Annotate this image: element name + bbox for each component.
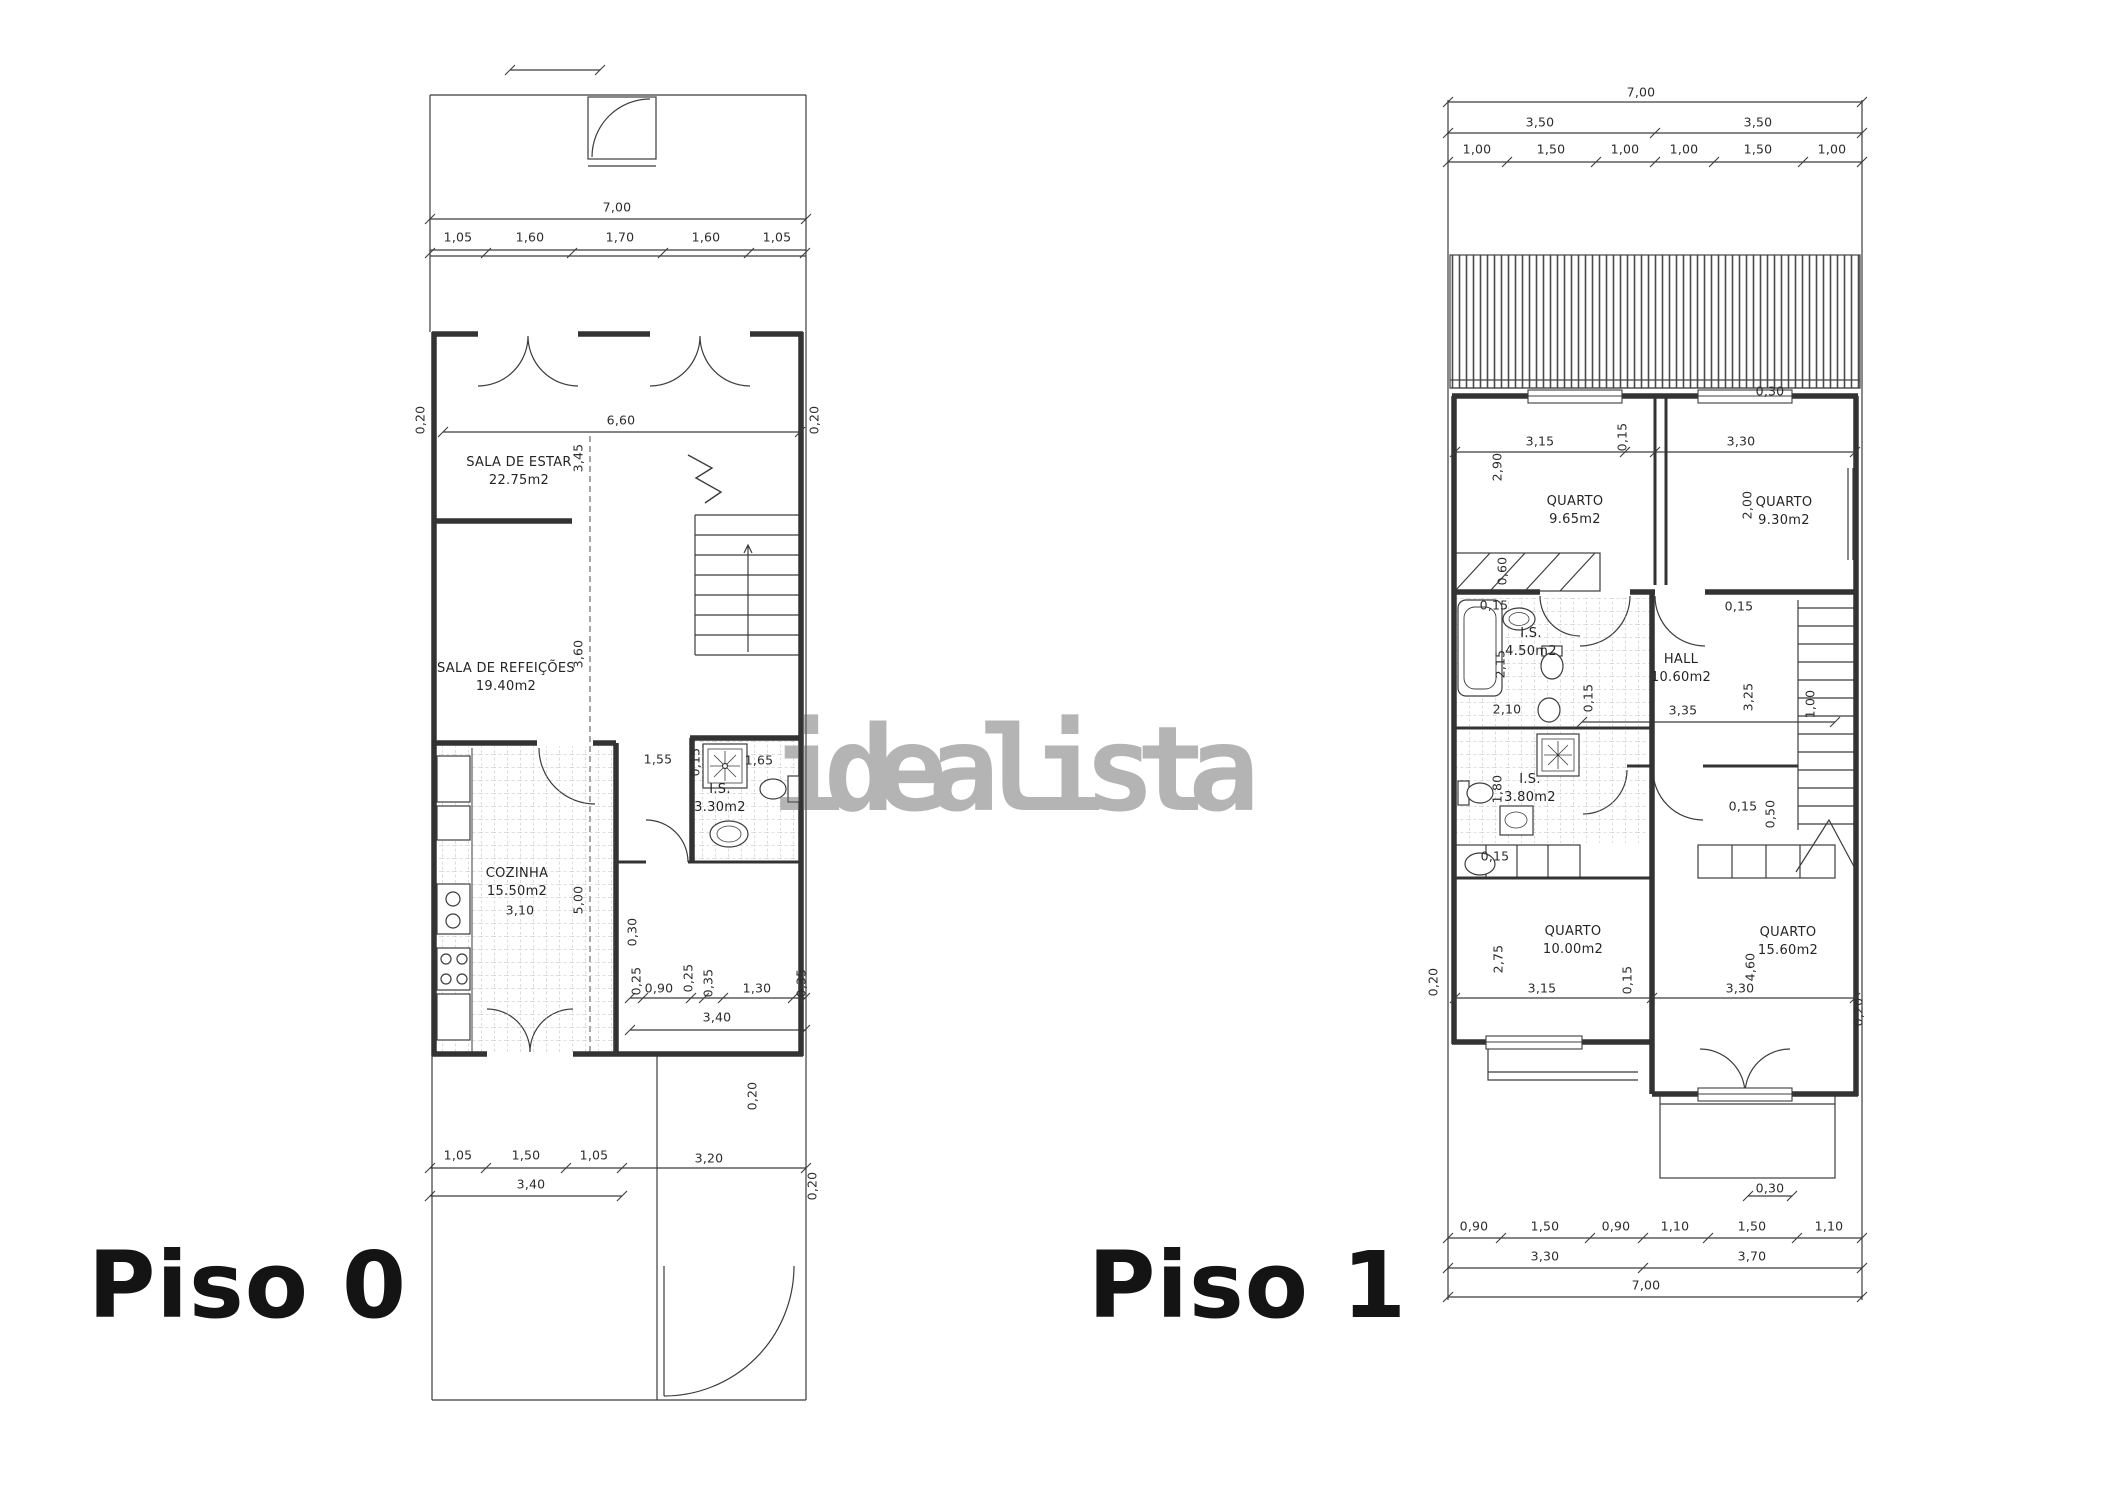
- dim-f0-top-seg: 1,70: [606, 231, 635, 244]
- burner: [441, 974, 451, 984]
- dim-f1-wardrobe-sw-015: 0,15: [1481, 850, 1510, 863]
- dim-f0-mid-seg: 0,90: [645, 982, 674, 995]
- room-area: 3.30m2: [694, 799, 746, 817]
- bathtub-inner: [1464, 607, 1496, 689]
- dim-f1-sw-depth: 2,75: [1492, 945, 1505, 974]
- dim-f0-top-seg: 1,05: [763, 231, 792, 244]
- dim-f1-sw-wall: 0,15: [1621, 966, 1634, 995]
- burner: [441, 954, 451, 964]
- dim-f0-mid-seg: 0,35: [702, 969, 715, 998]
- dim-f0-wall-bottom: 0,20: [806, 1172, 819, 1201]
- stair-break-symbol: [688, 455, 721, 503]
- dim-f0-interior-width: 6,60: [607, 414, 636, 427]
- sink-bowl: [446, 914, 460, 928]
- room-area: 15.60m2: [1758, 942, 1818, 960]
- room-area: 19.40m2: [437, 678, 575, 696]
- dim-f0-top-seg: 1,60: [692, 231, 721, 244]
- dim-f0-wall-030: 0,30: [626, 918, 639, 947]
- dim-f1-window-se-015: 0,15: [1729, 800, 1758, 813]
- window-ne-east: [1848, 468, 1853, 560]
- room-label-sala-estar: SALA DE ESTAR 22.75m2: [466, 454, 572, 490]
- dim-f1-width-total-bottom: 7,00: [1632, 1279, 1661, 1292]
- dim-f1-bottom-total: 3,30: [1531, 1250, 1560, 1263]
- dim-f1-top-seg: 1,50: [1537, 143, 1566, 156]
- dim-f1-half: 3,50: [1526, 116, 1555, 129]
- dim-f1-bottom-seg: 1,10: [1815, 1220, 1844, 1233]
- dim-f1-bottom-seg: 0,90: [1460, 1220, 1489, 1233]
- room-name: HALL: [1651, 651, 1711, 669]
- dim-f1-top-seg: 1,00: [1818, 143, 1847, 156]
- room-name: COZINHA: [486, 865, 549, 883]
- dim-f1-bottom-seg: 1,10: [1661, 1220, 1690, 1233]
- dim-f0-bottom-seg: 1,50: [512, 1149, 541, 1162]
- balcony-door-arc: [1700, 1049, 1790, 1094]
- dim-f0-width-total: 7,00: [603, 201, 632, 214]
- room-label-quarto-sw: QUARTO 10.00m2: [1543, 923, 1603, 959]
- dim-f1-hall-door-015: 0,15: [1725, 600, 1754, 613]
- dim-f1-hall-depth: 3,25: [1742, 683, 1755, 712]
- dim-f0-mid-seg: 0,35: [795, 969, 808, 998]
- room-name: I.S.: [1505, 625, 1557, 643]
- room-name: QUARTO: [1547, 493, 1604, 511]
- wardrobe-nw-hatch: [1455, 553, 1595, 591]
- dim-f0-bottom-seg: 1,05: [580, 1149, 609, 1162]
- dim-f1-is-grande-015: 0,15: [1480, 599, 1509, 612]
- room-label-is-f0: I.S. 3.30m2: [694, 781, 746, 817]
- sink-bowl: [446, 892, 460, 906]
- dim-f1-wall-right: 0,20: [1852, 998, 1865, 1027]
- room-area: 3.80m2: [1504, 789, 1556, 807]
- floor0-title: Piso 0: [88, 1232, 407, 1339]
- dim-f1-se-depth: 4,60: [1744, 953, 1757, 982]
- room-name: QUARTO: [1543, 923, 1603, 941]
- dim-f0-bottom-right: 3,20: [695, 1152, 724, 1165]
- floor0-drawing: [385, 60, 825, 1420]
- dim-f0-top-seg: 1,05: [444, 231, 473, 244]
- dim-f0-pass-015: 0,15: [689, 748, 702, 777]
- counter-unit: [437, 756, 470, 802]
- roof-hatch: [1450, 255, 1860, 388]
- dim-f0-wall-mid: 0,20: [746, 1082, 759, 1111]
- room-label-quarto-ne: QUARTO 9.30m2: [1756, 494, 1813, 530]
- dim-f0-wall-right: 0,20: [808, 406, 821, 435]
- gate-door-arc: [664, 1266, 794, 1396]
- dim-f1-stairs-width: 1,00: [1804, 690, 1817, 719]
- burner: [457, 974, 467, 984]
- watermark-logo: idealista: [772, 700, 1240, 838]
- room-label-is-grande: I.S. 4.50m2: [1505, 625, 1557, 661]
- cabinet-unit: [437, 994, 470, 1040]
- dim-f1-hall-wall-015: 0,15: [1582, 684, 1595, 713]
- room-name: QUARTO: [1756, 494, 1813, 512]
- porch-door-arc: [592, 99, 650, 157]
- dim-f0-mid-total: 3,40: [703, 1011, 732, 1024]
- dim-f1-se-width: 3,30: [1726, 982, 1755, 995]
- dim-f1-is-pequena-depth: 1,80: [1491, 775, 1504, 804]
- partition-quartos: [1655, 396, 1666, 585]
- sink-basin: [1509, 613, 1529, 626]
- room-name: I.S.: [694, 781, 746, 799]
- dim-f1-sw-width: 3,15: [1528, 982, 1557, 995]
- dim-f1-ne-depth: 2,00: [1741, 491, 1754, 520]
- stove-icon: [437, 948, 470, 990]
- room-label-sala-refeicoes: SALA DE REFEIÇÕES 19.40m2: [437, 660, 575, 696]
- floorplan-image: 7,00 1,05 1,60 1,70 1,60 1,05 6,60 0,20 …: [0, 0, 2114, 1510]
- dim-f0-wall-left: 0,20: [414, 406, 427, 435]
- shower-drain: [723, 764, 728, 769]
- dim-f0-cozinha-depth: 5,00: [572, 886, 585, 915]
- dim-f0-mid-seg: 0,25: [630, 967, 643, 996]
- dim-f1-top-seg: 1,00: [1670, 143, 1699, 156]
- counter-unit: [437, 806, 470, 840]
- dim-f0-bottom-total: 3,40: [517, 1178, 546, 1191]
- dim-f0-bottom-seg: 1,05: [444, 1149, 473, 1162]
- dim-f1-window-se-050: 0,50: [1764, 800, 1777, 829]
- dim-f1-nw-width: 3,15: [1526, 435, 1555, 448]
- dim-f1-partition: 0,15: [1616, 423, 1629, 452]
- quarto-ne-door-arc: [1655, 596, 1705, 646]
- floor1-title: Piso 1: [1088, 1232, 1407, 1339]
- room-name: SALA DE REFEIÇÕES: [437, 660, 575, 678]
- room-label-quarto-se: QUARTO 15.60m2: [1758, 924, 1818, 960]
- dim-f1-roof-step: 0,30: [1756, 385, 1785, 398]
- quarto-se-door-arc: [1653, 770, 1703, 820]
- window-band-se-dividers: [1732, 845, 1800, 878]
- dim-f0-top-seg: 1,60: [516, 231, 545, 244]
- room-label-quarto-nw: QUARTO 9.65m2: [1547, 493, 1604, 529]
- balcony-se: [1660, 1094, 1835, 1178]
- sink-basin: [717, 826, 741, 842]
- dim-f1-top-seg: 1,00: [1463, 143, 1492, 156]
- dim-f0-cozinha-width: 3,10: [506, 904, 535, 917]
- room-label-is-pequena: I.S. 3.80m2: [1504, 771, 1556, 807]
- room-name: QUARTO: [1758, 924, 1818, 942]
- dim-f1-bottom-seg: 1,50: [1738, 1220, 1767, 1233]
- shower-drain-rays: [1544, 741, 1572, 769]
- dim-f1-is-grande-width: 2,10: [1493, 703, 1522, 716]
- dim-f0-pass-155: 1,55: [644, 753, 673, 766]
- sink-basin: [1505, 812, 1527, 828]
- burner: [457, 954, 467, 964]
- dim-f1-top-seg: 1,50: [1744, 143, 1773, 156]
- room-area: 22.75m2: [466, 472, 572, 490]
- dim-f1-width-total-top: 7,00: [1627, 86, 1656, 99]
- dim-f1-bottom-seg: 0,90: [1602, 1220, 1631, 1233]
- dim-f0-mid-seg: 1,30: [743, 982, 772, 995]
- dim-f0-pass-165: 1,65: [745, 754, 774, 767]
- room-name: I.S.: [1504, 771, 1556, 789]
- dim-f0-estar-depth: 3,45: [572, 444, 585, 473]
- dim-f1-bottom-total: 3,70: [1738, 1250, 1767, 1263]
- dim-f1-wardrobe: 0,60: [1496, 557, 1509, 586]
- room-label-hall: HALL 10.60m2: [1651, 651, 1711, 687]
- dim-f0-mid-seg: 0,25: [682, 964, 695, 993]
- dim-f1-hall-width: 3,35: [1669, 704, 1698, 717]
- dim-f1-ne-width: 3,30: [1727, 435, 1756, 448]
- stairs-break-symbol: [1796, 820, 1858, 874]
- bidet-icon: [1538, 698, 1560, 722]
- dim-f1-bottom-seg: 1,50: [1531, 1220, 1560, 1233]
- room-area: 15.50m2: [486, 883, 549, 901]
- dim-lines-top: [1448, 133, 1862, 162]
- room-area: 9.65m2: [1547, 511, 1604, 529]
- dim-f1-nw-depth: 2,90: [1491, 453, 1504, 482]
- dim-f1-is-grande-depth: 2,15: [1494, 650, 1507, 679]
- dim-f1-half: 3,50: [1744, 116, 1773, 129]
- room-label-cozinha: COZINHA 15.50m2: [486, 865, 549, 901]
- room-area: 4.50m2: [1505, 643, 1557, 661]
- french-door-right-arc: [650, 336, 750, 386]
- dim-f1-top-seg: 1,00: [1611, 143, 1640, 156]
- room-area: 9.30m2: [1756, 512, 1813, 530]
- stairs-arrow: [744, 545, 752, 652]
- room-area: 10.60m2: [1651, 669, 1711, 687]
- room-name: SALA DE ESTAR: [466, 454, 572, 472]
- dim-f1-balcony-step: 0,30: [1756, 1182, 1785, 1195]
- corridor-door-arc: [646, 820, 688, 862]
- dim-f1-wall-left: 0,20: [1427, 968, 1440, 997]
- room-area: 10.00m2: [1543, 941, 1603, 959]
- french-door-left-arc: [478, 336, 578, 386]
